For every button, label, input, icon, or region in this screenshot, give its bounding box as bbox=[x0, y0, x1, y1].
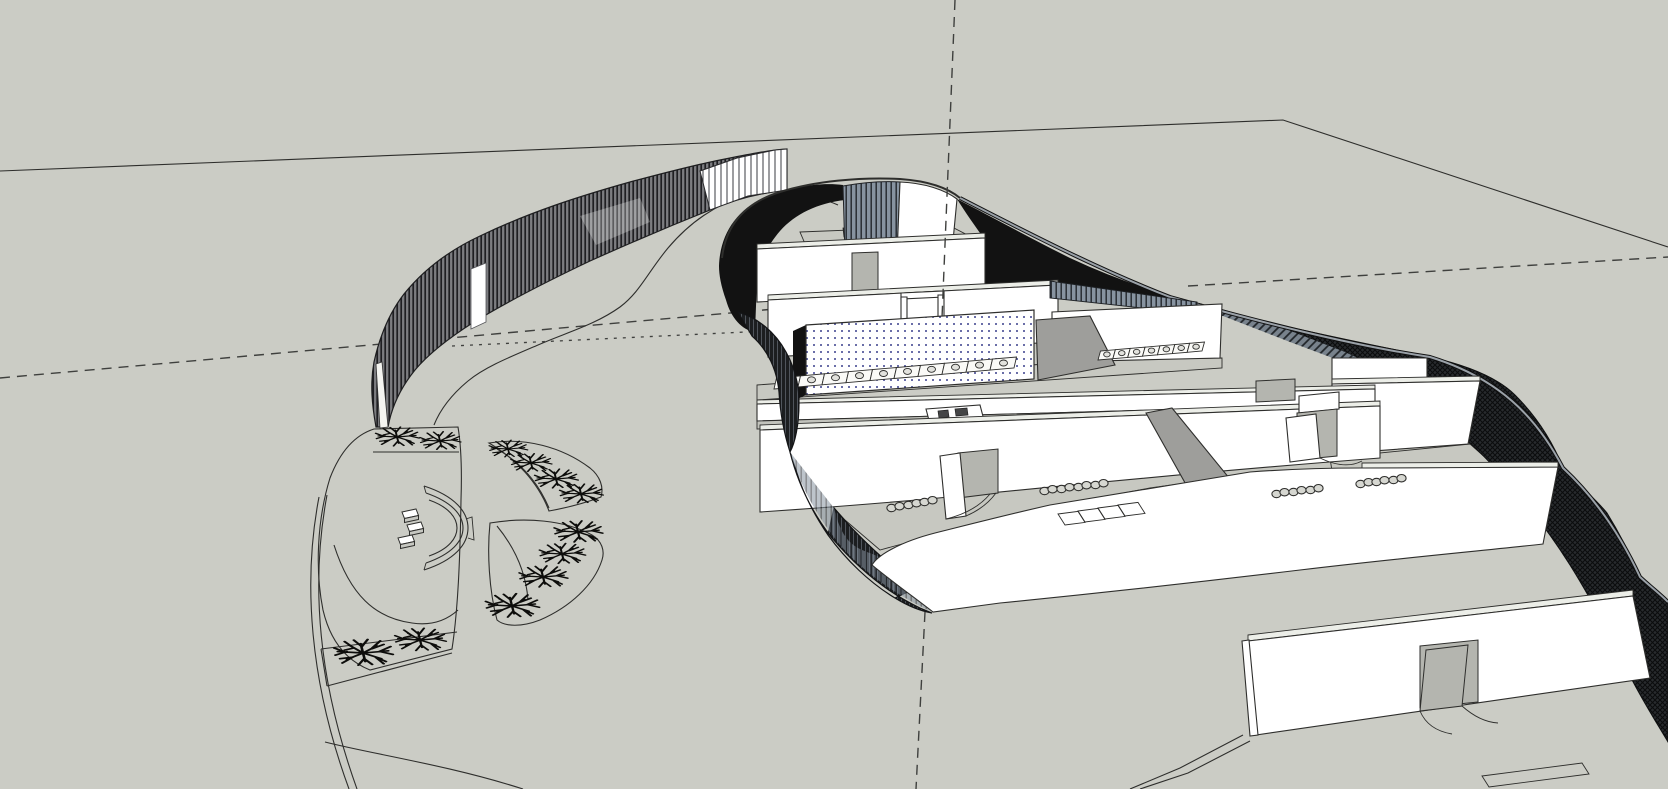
toilet-stall bbox=[798, 374, 825, 387]
open-door-leaf bbox=[1420, 645, 1468, 711]
bench-seat bbox=[398, 535, 415, 549]
toilet-stall bbox=[870, 368, 897, 381]
bench-seat bbox=[407, 522, 424, 536]
toilet-stall bbox=[846, 370, 873, 383]
fence-white-gap bbox=[471, 263, 486, 329]
toilet-stall bbox=[942, 361, 969, 374]
model-viewport[interactable] bbox=[0, 0, 1668, 789]
toilet-stall bbox=[822, 372, 849, 385]
toilet-stall bbox=[894, 365, 921, 378]
south-wall-top-face bbox=[1362, 462, 1558, 468]
toilet-stall bbox=[1187, 342, 1204, 352]
bench-seat bbox=[402, 509, 419, 523]
toilet-stall bbox=[966, 359, 993, 372]
toilet-stall bbox=[918, 363, 945, 376]
corridor-door bbox=[1256, 379, 1295, 402]
viewport-canvas[interactable] bbox=[0, 0, 1668, 789]
band1-door-opening bbox=[852, 252, 878, 295]
toilet-stall bbox=[990, 357, 1017, 370]
